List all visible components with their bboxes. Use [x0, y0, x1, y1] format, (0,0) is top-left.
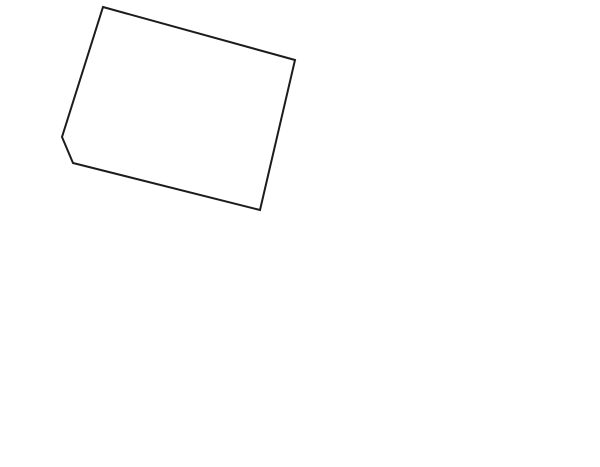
parcel-upper-left — [62, 7, 295, 210]
parcel-layer — [62, 7, 295, 210]
plat-map-page — [0, 0, 600, 467]
plot-map — [0, 0, 600, 467]
